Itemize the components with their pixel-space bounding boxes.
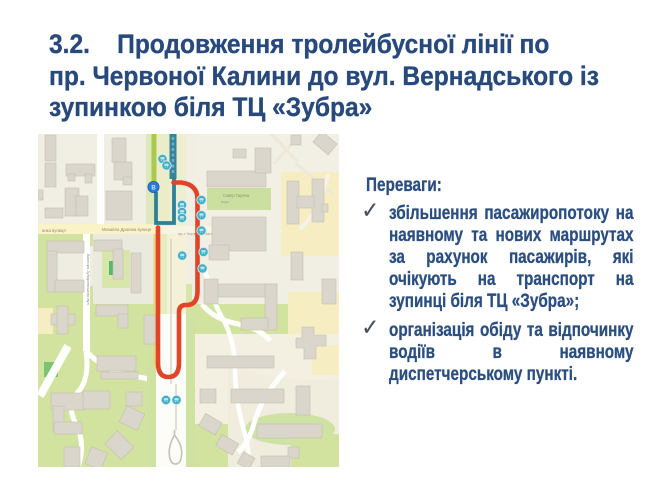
svg-text:Виктора Зубаревського вул: Виктора Зубаревського вул xyxy=(86,254,91,305)
svg-text:Михайла Драгана вулиця: Михайла Драгана вулиця xyxy=(102,227,151,232)
svg-text:B: B xyxy=(151,185,156,191)
svg-text:Сквер Гаряча: Сквер Гаряча xyxy=(223,193,250,198)
svg-text:вода: вода xyxy=(221,200,229,204)
svg-text:анка вулиця: анка вулиця xyxy=(42,228,66,233)
